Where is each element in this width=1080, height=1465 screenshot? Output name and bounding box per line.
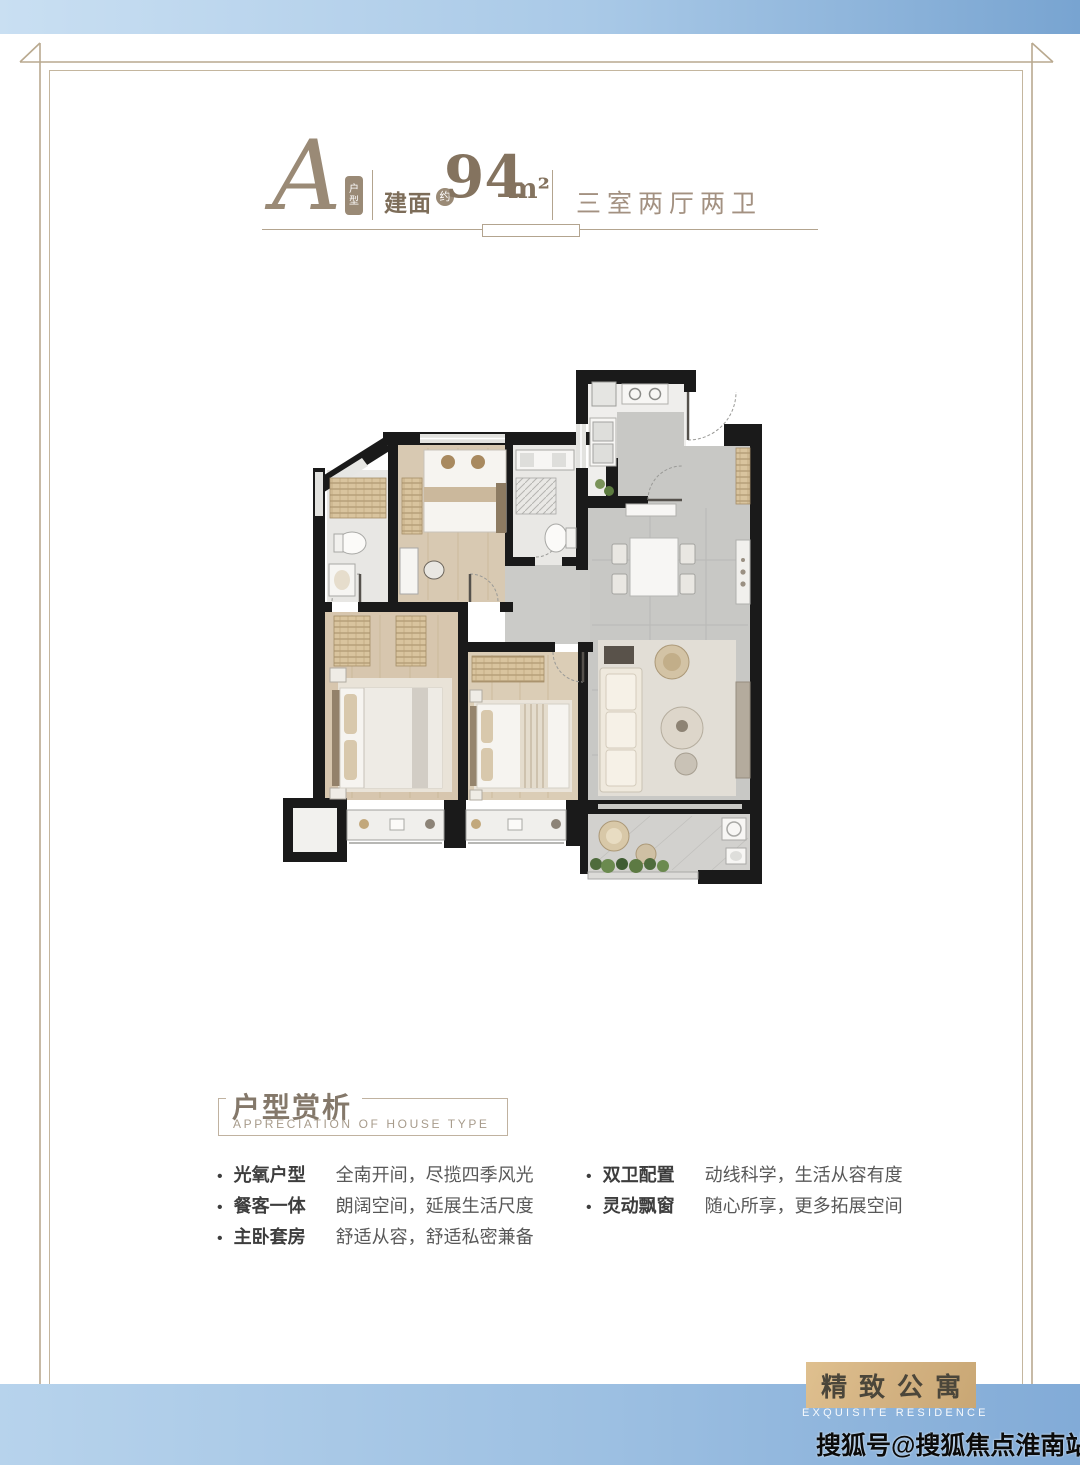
feature-label: 主卧套房 xyxy=(234,1222,320,1253)
feature-label: 光氧户型 xyxy=(234,1160,320,1191)
feature-desc: 朗阔空间，延展生活尺度 xyxy=(336,1191,534,1222)
feature-label: 灵动飘窗 xyxy=(603,1191,689,1222)
bullet-dot: • xyxy=(586,1161,592,1192)
unit-type-badge: 户 型 xyxy=(345,176,363,215)
poster-page: { "header": { "type_letter": "A", "type_… xyxy=(0,0,1080,1465)
watermark-text: 搜狐号@搜狐焦点淮南站 xyxy=(816,1426,1080,1462)
feature-label: 双卫配置 xyxy=(603,1160,689,1191)
badge-char-2: 型 xyxy=(349,196,359,208)
bullet-dot: • xyxy=(217,1192,223,1223)
header-divider-2 xyxy=(552,170,553,220)
header-ornament xyxy=(482,224,580,237)
feature-item: • 餐客一体 朗阔空间，延展生活尺度 xyxy=(217,1191,534,1223)
bullet-dot: • xyxy=(217,1223,223,1254)
feature-item: • 双卫配置 动线科学，生活从容有度 xyxy=(586,1160,903,1192)
bullet-dot: • xyxy=(586,1192,592,1223)
feature-desc: 舒适从容，舒适私密兼备 xyxy=(336,1222,534,1253)
residence-badge-title: 精致公寓 xyxy=(821,1367,973,1404)
feature-label: 餐客一体 xyxy=(234,1191,320,1222)
feature-item: • 灵动飘窗 随心所享，更多拓展空间 xyxy=(586,1191,903,1223)
feature-desc: 动线科学，生活从容有度 xyxy=(705,1160,903,1191)
area-label: 建面 xyxy=(384,184,432,218)
analysis-subtitle: APPRECIATION OF HOUSE TYPE xyxy=(233,1117,490,1131)
feature-item: • 主卧套房 舒适从容，舒适私密兼备 xyxy=(217,1222,534,1254)
residence-badge-subtitle: EXQUISITE RESIDENCE xyxy=(802,1407,1002,1419)
feature-desc: 全南开间，尽揽四季风光 xyxy=(336,1160,534,1191)
unit-type-letter: A xyxy=(272,128,341,224)
area-unit: m² xyxy=(508,172,550,205)
badge-char-1: 户 xyxy=(349,184,359,196)
floorplan xyxy=(281,368,765,908)
feature-desc: 随心所享，更多拓展空间 xyxy=(705,1191,903,1222)
residence-badge: 精致公寓 xyxy=(806,1362,976,1408)
feature-item: • 光氧户型 全南开间，尽揽四季风光 xyxy=(217,1160,534,1192)
room-layout-text: 三室两厅两卫 xyxy=(576,184,762,220)
bullet-dot: • xyxy=(217,1161,223,1192)
header-divider-1 xyxy=(372,170,373,220)
